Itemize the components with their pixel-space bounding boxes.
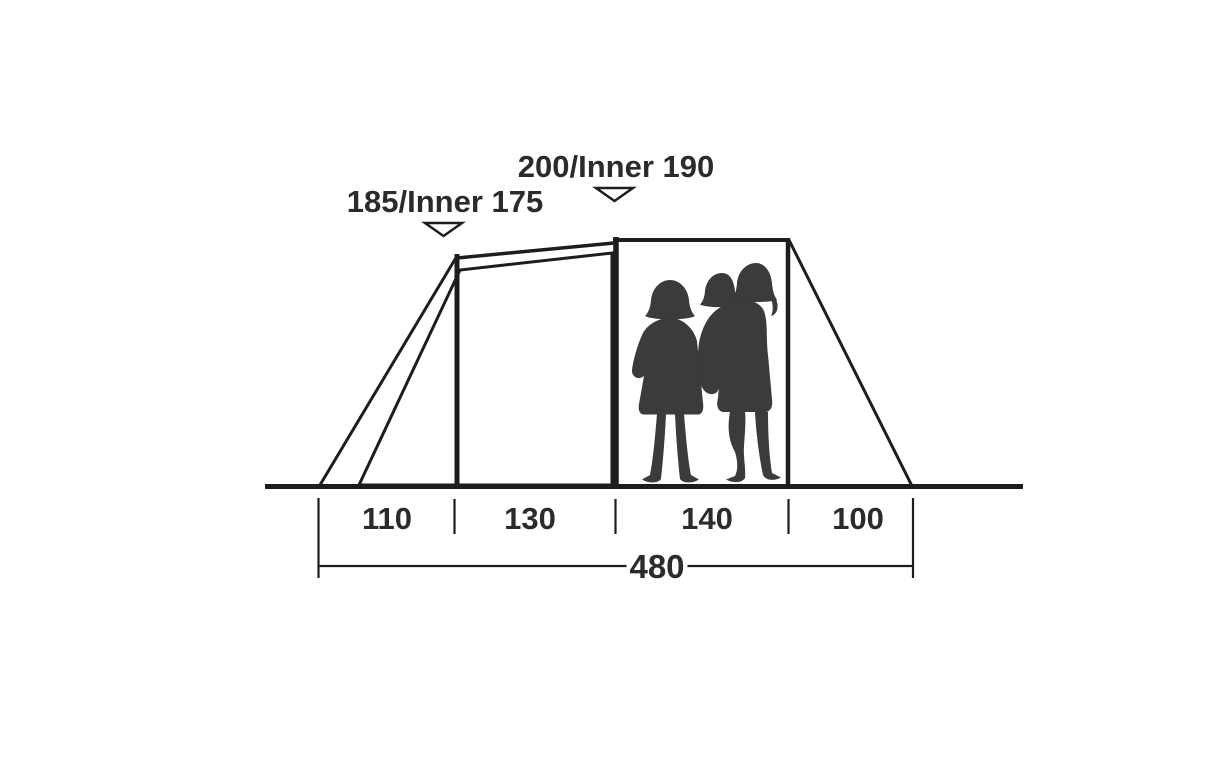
adult-and-child-body-silhouette [698,300,773,412]
tent-right-slope-line [789,240,912,486]
adult-left-leg-silhouette [726,412,745,482]
woman-right-leg-silhouette [675,414,699,482]
family-silhouette-group [632,263,781,482]
adult-right-leg-silhouette [755,412,781,480]
total-length-label: 480 [626,550,687,583]
section-width-label-110: 110 [362,503,412,534]
main-height-marker-triangle-icon [596,188,633,201]
front-peak-height-label: 185/Inner 175 [347,186,543,217]
main-peak-height-label: 200/Inner 190 [518,151,714,182]
diagram-canvas [0,0,1230,774]
adult-carrying-child-silhouette [698,263,781,482]
woman-left-leg-silhouette [642,414,666,482]
section-width-label-140: 140 [681,503,733,534]
section-width-label-130: 130 [504,503,556,534]
tent-left-slope-line [320,256,457,485]
woman-torso-silhouette [632,318,703,415]
woman-head-silhouette [645,280,695,319]
adult-silhouette [632,280,703,482]
section-width-label-100: 100 [832,503,884,534]
front-height-marker-triangle-icon [425,223,462,236]
tent-dimension-diagram: 185/Inner 175 200/Inner 190 110 130 140 … [0,0,1230,774]
inner-tent-panel [359,253,612,485]
